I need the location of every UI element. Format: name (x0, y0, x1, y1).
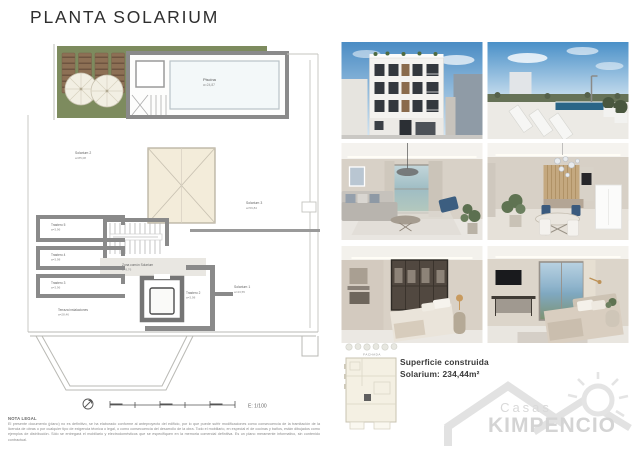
brand-logo: Casas KIMPENCIO (438, 366, 636, 450)
key-plan-thumbnail: FACHADA (344, 342, 400, 436)
parasol-icon (91, 75, 123, 107)
legal-note-heading: NOTA LEGAL (8, 416, 320, 421)
room-label-solarium3: Solarium 3 (246, 201, 262, 205)
photo-dining-room-render (487, 143, 629, 240)
room-area-solarium1: a=43,55 (234, 290, 245, 294)
room-label-piscina: Piscina (203, 77, 217, 82)
room-label-zona-comun: Zona común Solarium (122, 263, 154, 267)
room-label-solarium1: Solarium 1 (234, 285, 250, 289)
elevator (142, 274, 182, 320)
room-area-terraza: a=28,46 (58, 313, 69, 317)
scale-label: E: 1/100 (248, 404, 267, 410)
room-area-trastero2: a=3,98 (186, 296, 196, 300)
page-title: PLANTA SOLARIUM (30, 7, 219, 28)
terrace-apron-outline (28, 332, 318, 390)
floor-plan: Piscina a=24,87 (18, 40, 328, 418)
room-area-solarium2: a=85,08 (75, 156, 86, 160)
photo-bedroom-wardrobe-render (341, 246, 483, 343)
brand-name-bottom: KIMPENCIO (488, 414, 616, 437)
skylight (148, 148, 215, 223)
dividing-wall (190, 229, 320, 232)
room-label-trastero4: Trastero 4 (51, 253, 66, 257)
room-label-trastero3: Trastero 3 (51, 281, 66, 285)
north-arrow-icon (83, 399, 93, 409)
legal-note: NOTA LEGAL El presente documento (plano)… (8, 416, 320, 443)
room-area-solarium3: a=59,84 (246, 206, 257, 210)
legal-note-body: El presente documento (plano) no es defi… (8, 422, 320, 443)
brochure-page: PLANTA SOLARIUM (0, 0, 636, 450)
sun-icon (568, 372, 628, 416)
storage-rooms (36, 215, 125, 298)
room-area-piscina: a=24,87 (203, 83, 215, 87)
scale-bar (110, 401, 235, 408)
room-label-solarium2: Solarium 2 (75, 151, 91, 155)
tree-icons (346, 344, 397, 351)
room-area-trastero4: a=3,98 (51, 258, 61, 262)
photo-rooftop-pool-render (487, 42, 629, 139)
brand-name-top: Casas (500, 400, 552, 415)
room-label-trastero5: Trastero 5 (51, 223, 66, 227)
room-area-trastero3: a=3,96 (51, 286, 61, 290)
photo-facade-render (341, 42, 483, 139)
photo-bedroom-view-render (487, 246, 629, 343)
room-label-trastero2: Trastero 2 (186, 291, 201, 295)
keyplan-caption: FACHADA (363, 353, 381, 357)
room-area-trastero5: a=3,96 (51, 228, 61, 232)
photo-living-room-render (341, 143, 483, 240)
room-label-terraza: Terraza instalaciones (58, 308, 88, 312)
